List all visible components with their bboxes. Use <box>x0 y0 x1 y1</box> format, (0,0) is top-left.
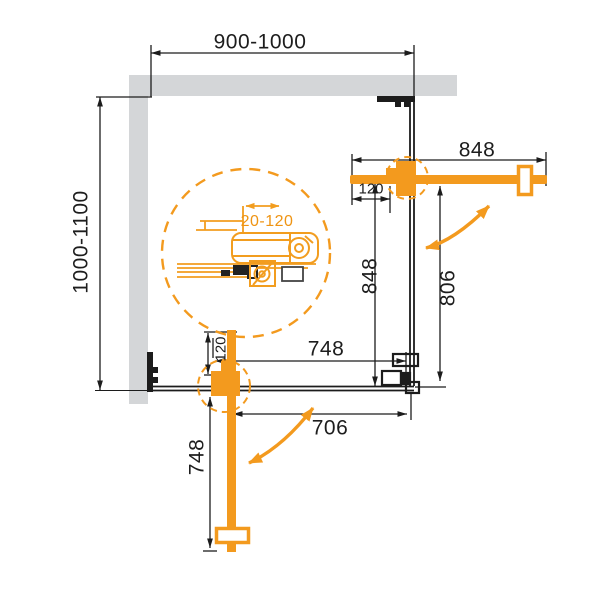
shower-enclosure-technical-drawing: 900-1000 1000-1100 848 120 848 806 748 7… <box>0 0 600 600</box>
wall-vertical <box>129 75 148 404</box>
fixed-glass-bottom <box>150 387 414 391</box>
dim-width-range-label: 900-1000 <box>214 32 307 53</box>
fixed-glass-right <box>410 101 414 386</box>
dim-adjustment-range-label: 20-120 <box>241 214 294 230</box>
swing-arrow-bottom <box>249 408 313 463</box>
adjustable-profile-bracket <box>232 233 318 263</box>
dim-door-swing-bottom-label: 706 <box>312 418 349 439</box>
wall-horizontal <box>130 75 457 96</box>
detail-circle <box>162 169 330 337</box>
door-bottom <box>211 330 249 552</box>
dim-glass-width-bottom-label: 748 <box>308 339 345 360</box>
dim-depth-range-label: 1000-1100 <box>71 190 92 293</box>
dim-wall-offset-top-label: 120 <box>358 182 383 197</box>
door-handle-top <box>519 167 532 195</box>
dim-door-width-top-label: 848 <box>459 140 496 161</box>
wall-profile-top <box>377 96 415 107</box>
swing-arrow-top <box>426 206 489 248</box>
drawing-canvas <box>0 0 600 600</box>
dim-door-length-bottom-label: 748 <box>187 439 208 476</box>
dim-door-swing-right-label: 806 <box>438 270 459 307</box>
dim-glass-height-right-label: 848 <box>360 258 381 295</box>
dim-wall-offset-bottom-label: 120 <box>214 336 229 361</box>
door-handle-bottom <box>217 529 249 543</box>
